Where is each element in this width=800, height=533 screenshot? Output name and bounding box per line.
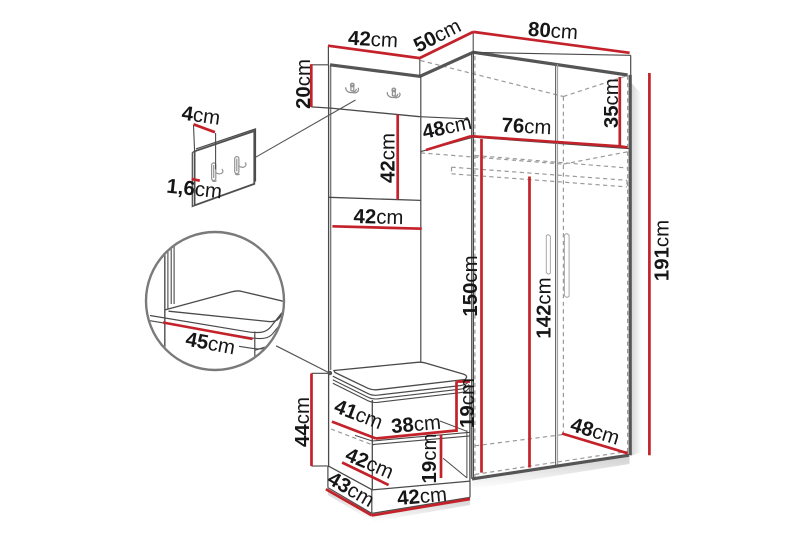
svg-text:80cm: 80cm xyxy=(527,19,578,44)
svg-text:76cm: 76cm xyxy=(501,115,552,140)
svg-text:42cm: 42cm xyxy=(347,28,398,53)
svg-text:142cm: 142cm xyxy=(534,277,556,338)
svg-text:38cm: 38cm xyxy=(390,412,442,438)
svg-text:19cm: 19cm xyxy=(457,378,479,428)
svg-text:20cm: 20cm xyxy=(293,59,315,109)
svg-text:42cm: 42cm xyxy=(353,206,403,229)
svg-text:150cm: 150cm xyxy=(460,255,482,316)
svg-text:191cm: 191cm xyxy=(652,220,674,281)
svg-text:44cm: 44cm xyxy=(292,397,314,447)
svg-text:19cm: 19cm xyxy=(419,434,441,484)
svg-text:42cm: 42cm xyxy=(396,484,448,510)
svg-text:42cm: 42cm xyxy=(378,133,400,183)
svg-text:35cm: 35cm xyxy=(601,78,623,128)
